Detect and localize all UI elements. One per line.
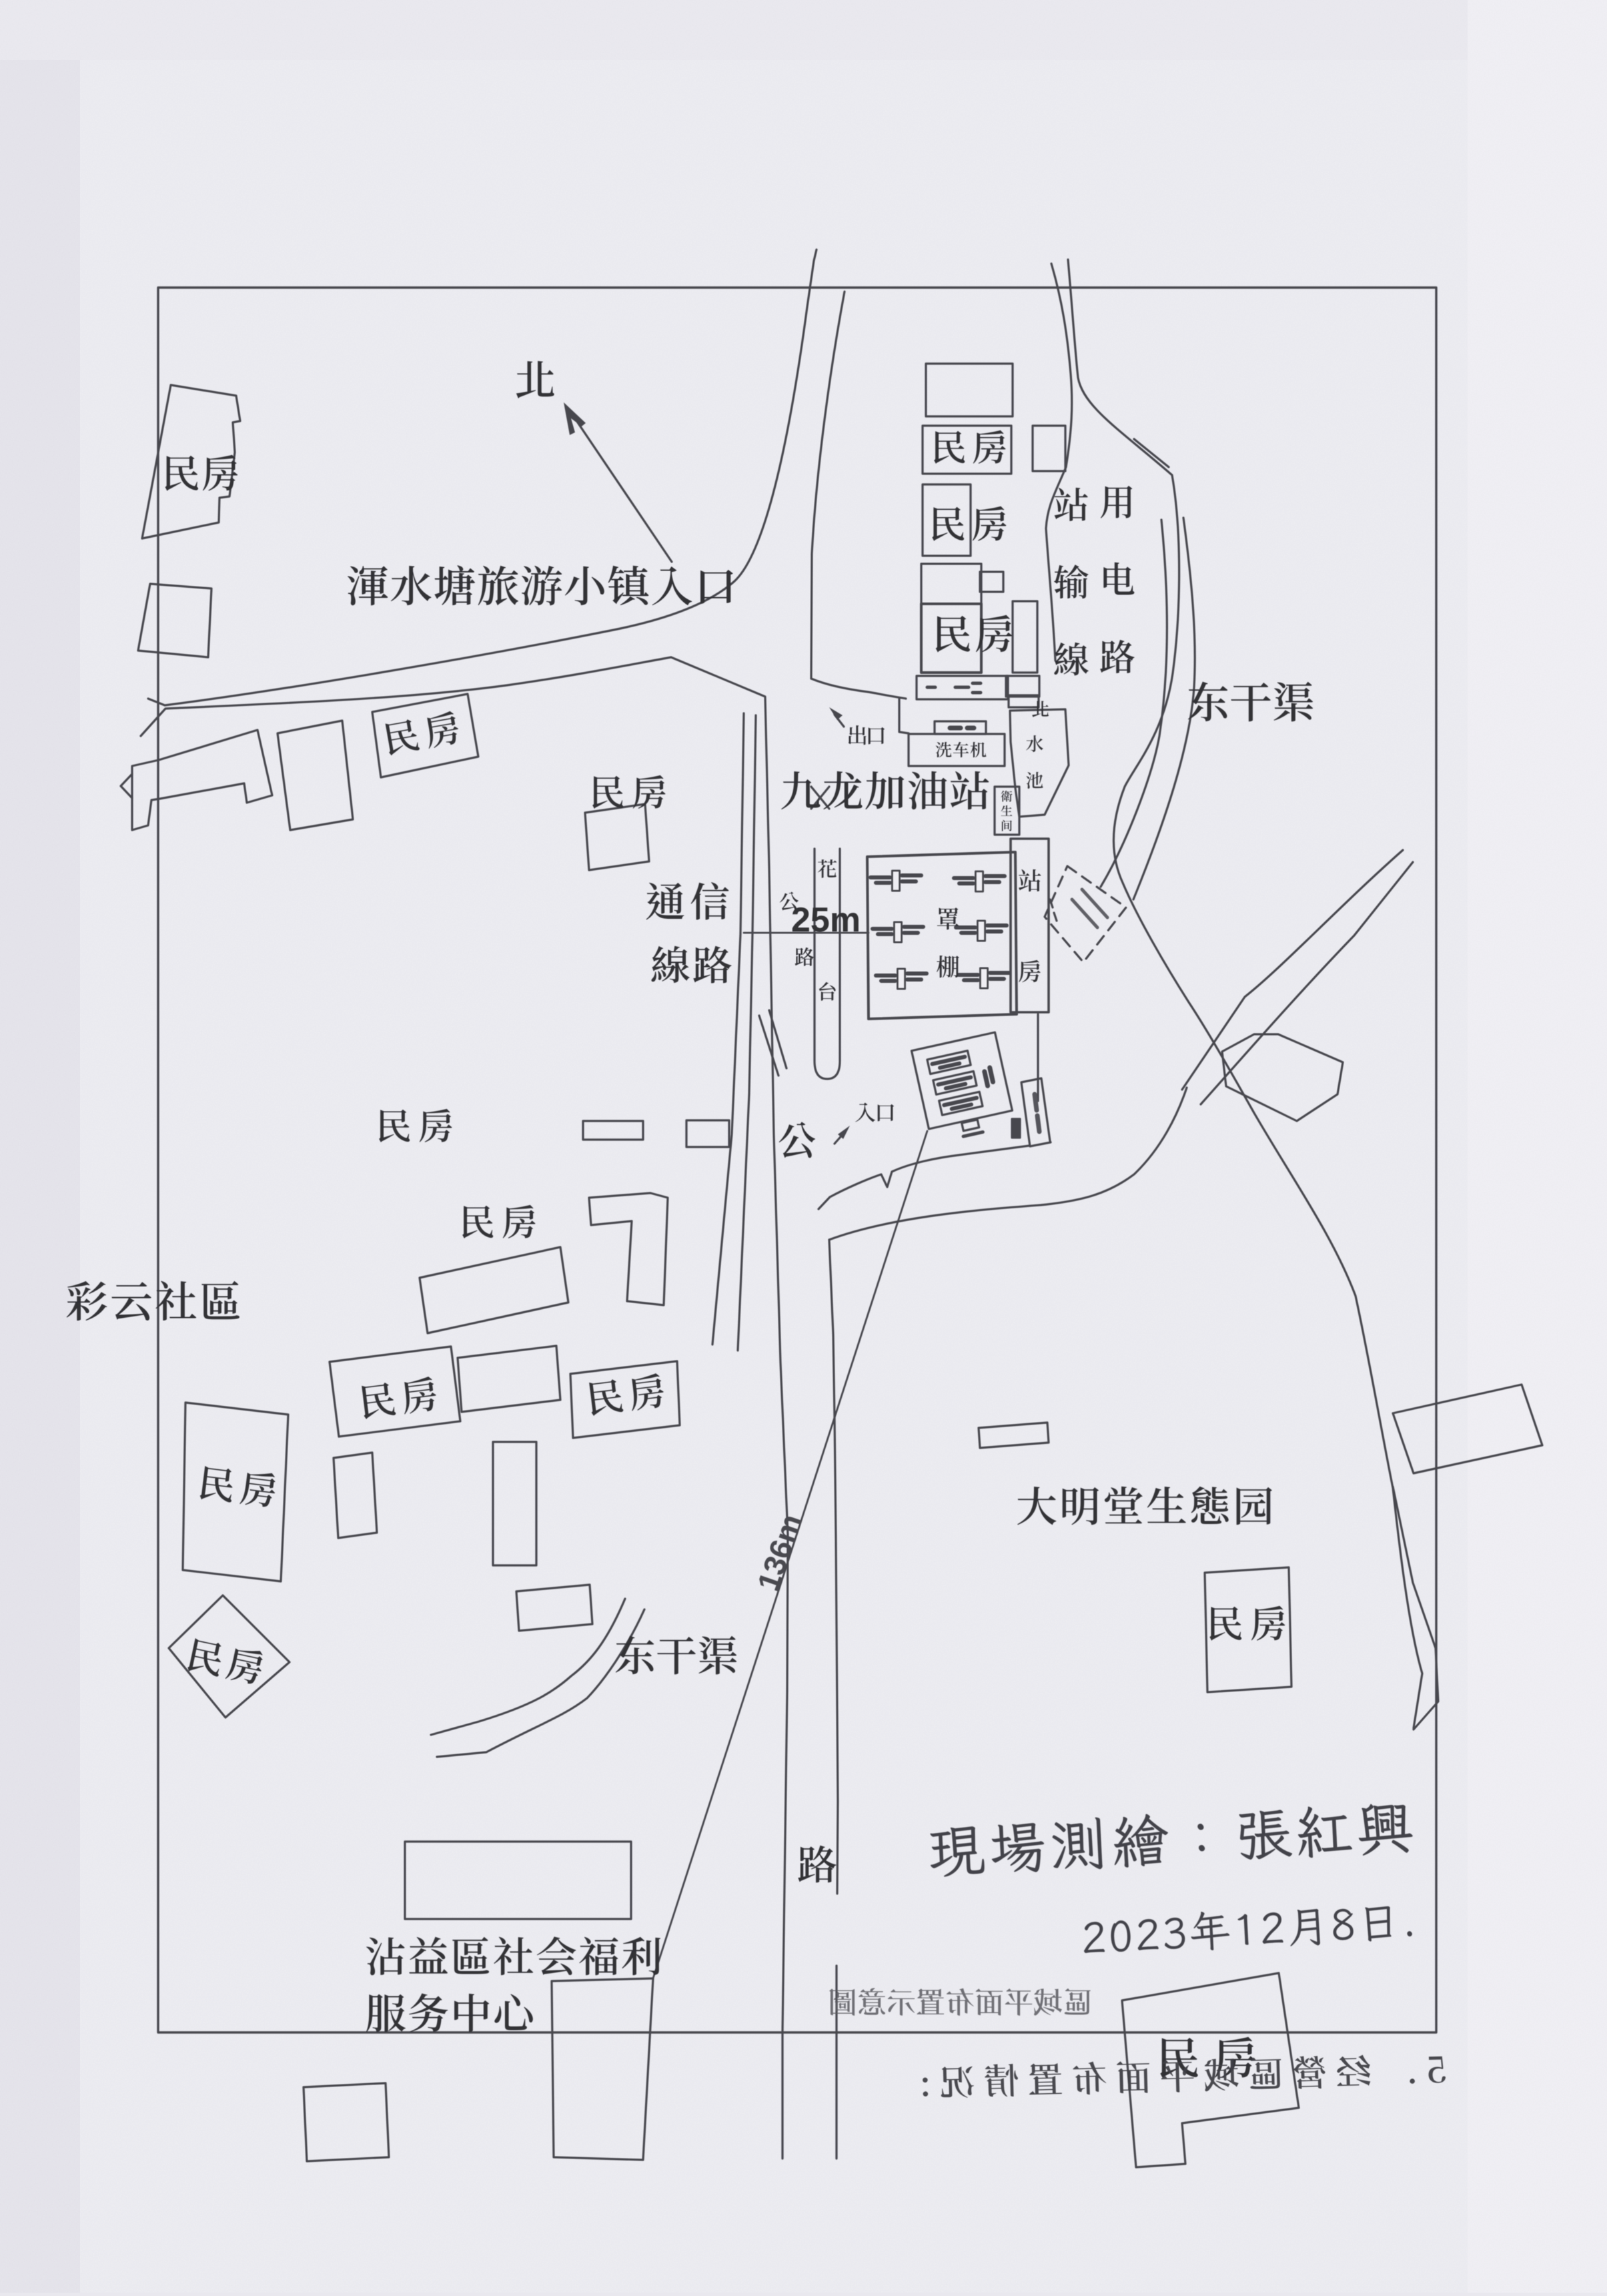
svg-text:25m: 25m bbox=[791, 901, 861, 939]
